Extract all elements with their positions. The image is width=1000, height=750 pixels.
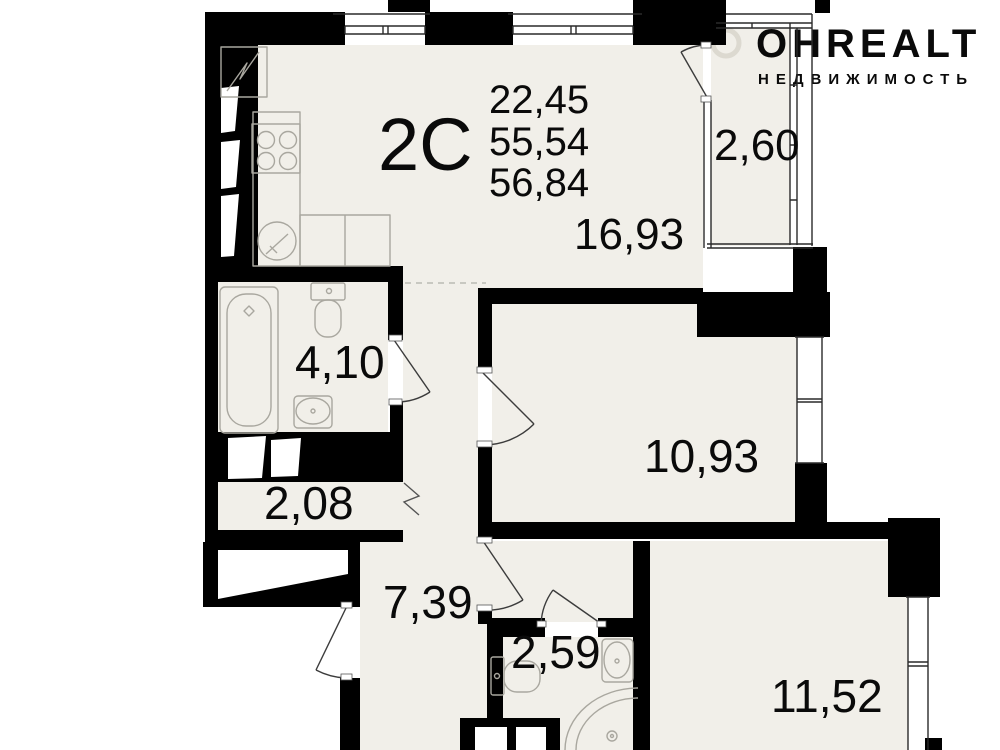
- area-storage: 2,08: [264, 477, 354, 529]
- wall: [205, 530, 403, 542]
- wall: [388, 282, 403, 340]
- floorplan-svg: ОНREALT НЕДВИЖИМОСТЬ: [0, 0, 1000, 750]
- area-kitchen-living: 16,93: [574, 210, 684, 259]
- wall: [390, 402, 403, 432]
- wall: [815, 0, 830, 13]
- wall: [340, 678, 360, 750]
- area-balcony: 2,60: [714, 121, 800, 170]
- wall: [478, 445, 492, 525]
- floorplan-image: ОНREALT НЕДВИЖИМОСТЬ: [0, 0, 1000, 750]
- wall: [795, 463, 827, 525]
- area-wc: 2,59: [511, 626, 601, 678]
- unit-area-total-with-summer: 56,84: [489, 161, 589, 205]
- wall: [633, 541, 650, 750]
- wall: [388, 0, 430, 12]
- wall: [478, 288, 492, 373]
- wall: [425, 12, 513, 45]
- area-bedroom: 10,93: [644, 430, 759, 482]
- unit-type-label: 2С: [378, 103, 473, 186]
- wall: [697, 292, 830, 337]
- unit-area-living: 22,45: [489, 78, 589, 122]
- wall: [633, 0, 726, 45]
- area-hallway: 7,39: [383, 576, 473, 628]
- wall: [793, 247, 827, 297]
- area-room: 11,52: [771, 670, 883, 722]
- area-bathroom: 4,10: [295, 336, 385, 388]
- wall: [205, 266, 403, 282]
- wall: [478, 522, 890, 539]
- room-floor-hallway-wc-front: [487, 541, 633, 622]
- unit-area-total: 55,54: [489, 120, 589, 164]
- wall: [888, 518, 940, 597]
- room-floor-bedroom: [492, 304, 797, 525]
- wall: [487, 288, 703, 304]
